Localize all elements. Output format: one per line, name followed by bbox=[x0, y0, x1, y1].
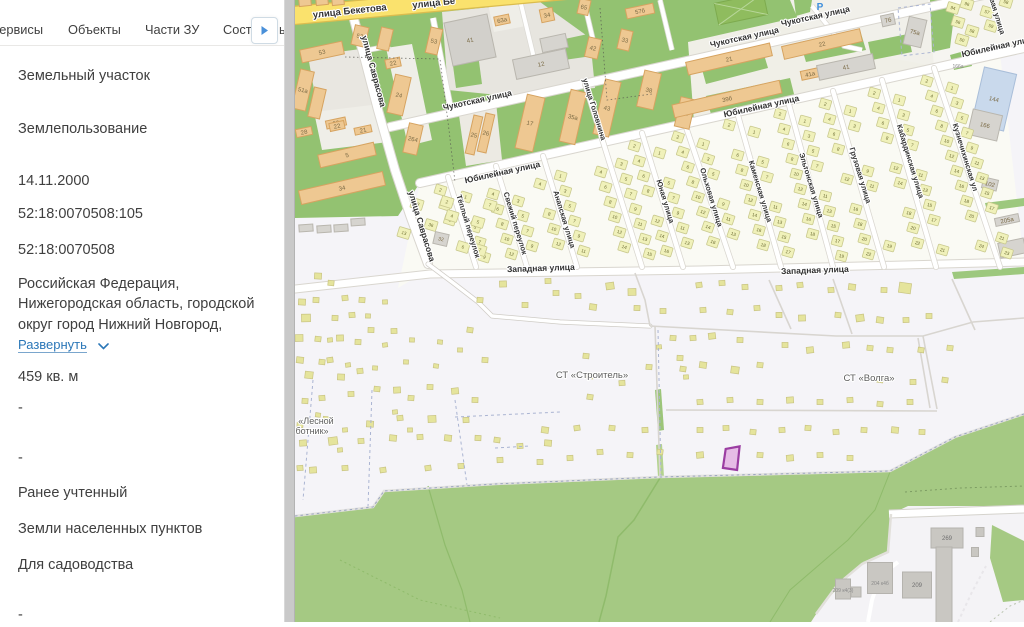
svg-text:«Лесной: «Лесной bbox=[298, 416, 333, 426]
svg-text:СТ «Волга»: СТ «Волга» bbox=[843, 373, 894, 384]
svg-text:209 к4(3): 209 к4(3) bbox=[833, 588, 854, 594]
svg-text:204 к4б: 204 к4б bbox=[871, 581, 889, 587]
svg-text:269: 269 bbox=[942, 536, 953, 542]
svg-text:209: 209 bbox=[912, 583, 923, 589]
svg-text:СТ «Строитель»: СТ «Строитель» bbox=[556, 370, 628, 381]
svg-text:166а: 166а bbox=[952, 64, 963, 70]
svg-text:P: P bbox=[817, 2, 824, 13]
svg-text:ботник»: ботник» bbox=[295, 426, 328, 436]
